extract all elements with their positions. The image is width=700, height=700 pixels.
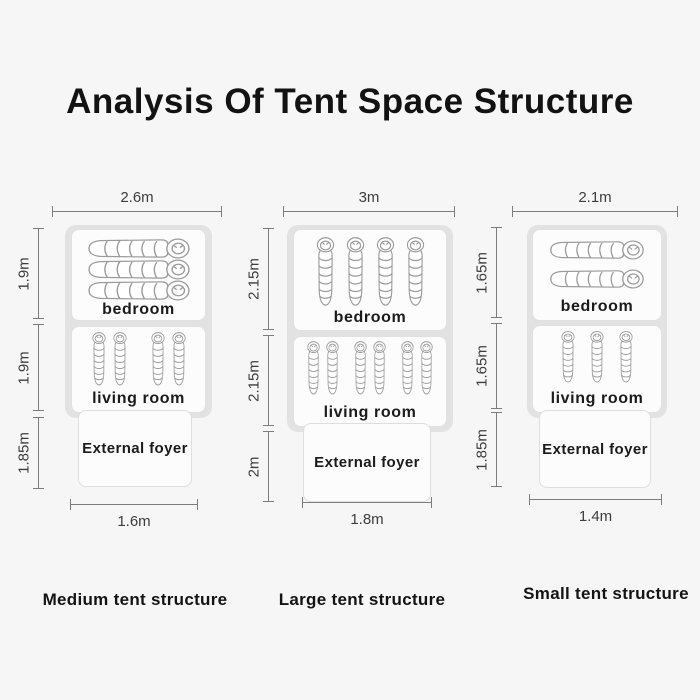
large-external-foyer: External foyer — [303, 423, 431, 502]
dimension-label: 1.85m — [474, 429, 491, 471]
small-bedroom: bedroom — [532, 229, 662, 321]
dimension-line — [52, 211, 222, 212]
sleeping-bag-group — [91, 327, 187, 388]
page-title: Analysis Of Tent Space Structure — [0, 82, 700, 122]
medium-living-depth-dimension: 1.9m — [38, 324, 39, 411]
sleeping-bag-icon — [618, 331, 634, 385]
sleeping-bag-icon — [306, 341, 321, 397]
small-external-foyer: External foyer — [539, 410, 651, 488]
large-top-width-dimension: 3m — [283, 189, 455, 212]
dimension-label: 1.6m — [117, 513, 150, 530]
large-bottom-width-dimension: 1.8m — [302, 502, 432, 528]
sleeping-bag-icon — [315, 237, 336, 309]
small-living-depth-dimension: 1.65m — [496, 323, 497, 409]
sleeping-bag-icon — [86, 238, 192, 259]
dimension-label: 2.1m — [578, 189, 611, 206]
sleeping-bag-icon — [419, 341, 434, 397]
large-living-depth-dimension: 2.15m — [268, 335, 269, 426]
dimension-line — [302, 502, 432, 503]
room-label: bedroom — [334, 309, 407, 331]
small-bedroom-depth-dimension: 1.65m — [496, 227, 497, 318]
sleeping-bag-group — [306, 337, 434, 397]
sleeping-bag-icon — [345, 237, 366, 309]
sleeping-bag-icon — [150, 332, 166, 388]
sleeping-bag-icon — [325, 341, 340, 397]
room-label: External foyer — [314, 454, 420, 471]
sleeping-bag-icon — [400, 341, 415, 397]
sleeping-bag-icon — [353, 341, 368, 397]
sleeping-bag-icon — [548, 269, 646, 289]
sleeping-bag-icon — [589, 331, 605, 385]
sleeping-bag-icon — [86, 259, 192, 280]
dimension-label: 1.9m — [16, 351, 33, 384]
small-top-width-dimension: 2.1m — [512, 189, 678, 212]
sleeping-bag-icon — [405, 237, 426, 309]
dimension-line — [283, 211, 455, 212]
large-tent-caption: Large tent structure — [262, 590, 462, 610]
medium-top-width-dimension: 2.6m — [52, 189, 222, 212]
large-bedroom-depth-dimension: 2.15m — [268, 228, 269, 330]
dimension-label: 1.4m — [579, 508, 612, 525]
dimension-label: 1.9m — [16, 257, 33, 290]
sleeping-bag-icon — [112, 332, 128, 388]
dimension-label: 2.6m — [120, 189, 153, 206]
room-label: External foyer — [82, 440, 188, 457]
room-label: bedroom — [561, 298, 634, 320]
dimension-line — [512, 211, 678, 212]
sleeping-bag-group — [548, 230, 646, 289]
dimension-label: 1.65m — [474, 345, 491, 387]
large-living-room: living room — [293, 336, 447, 427]
sleeping-bag-group — [86, 230, 192, 301]
large-foyer-depth-dimension: 2m — [268, 431, 269, 502]
small-tent-caption: Small tent structure — [506, 584, 700, 604]
sleeping-bag-icon — [91, 332, 107, 388]
tent-analysis-diagram: Analysis Of Tent Space Structure 2.6m be… — [0, 0, 700, 700]
room-label: living room — [551, 390, 644, 412]
small-bottom-width-dimension: 1.4m — [529, 499, 662, 525]
sleeping-bag-group — [560, 326, 634, 385]
dimension-label: 1.8m — [350, 511, 383, 528]
sleeping-bag-icon — [560, 331, 576, 385]
dimension-label: 3m — [359, 189, 380, 206]
dimension-label: 2m — [246, 456, 263, 477]
large-bedroom: bedroom — [293, 229, 447, 331]
sleeping-bag-icon — [375, 237, 396, 309]
room-label: living room — [92, 390, 185, 412]
dimension-label: 2.15m — [246, 360, 263, 402]
medium-tent-caption: Medium tent structure — [30, 590, 240, 610]
dimension-label: 1.65m — [474, 252, 491, 294]
medium-bedroom-depth-dimension: 1.9m — [38, 228, 39, 319]
dimension-label: 2.15m — [246, 258, 263, 300]
sleeping-bag-icon — [548, 240, 646, 260]
dimension-line — [529, 499, 662, 500]
medium-foyer-depth-dimension: 1.85m — [38, 417, 39, 489]
medium-bedroom: bedroom — [71, 229, 206, 321]
medium-bottom-width-dimension: 1.6m — [70, 504, 198, 530]
small-living-room: living room — [532, 325, 662, 413]
sleeping-bag-icon — [86, 280, 192, 301]
sleeping-bag-icon — [171, 332, 187, 388]
dimension-line — [70, 504, 198, 505]
dimension-label: 1.85m — [16, 432, 33, 474]
room-label: External foyer — [542, 441, 648, 458]
sleeping-bag-icon — [372, 341, 387, 397]
medium-living-room: living room — [71, 326, 206, 413]
room-label: bedroom — [102, 301, 175, 323]
medium-external-foyer: External foyer — [78, 410, 192, 487]
sleeping-bag-group — [315, 230, 426, 309]
small-foyer-depth-dimension: 1.85m — [496, 412, 497, 487]
